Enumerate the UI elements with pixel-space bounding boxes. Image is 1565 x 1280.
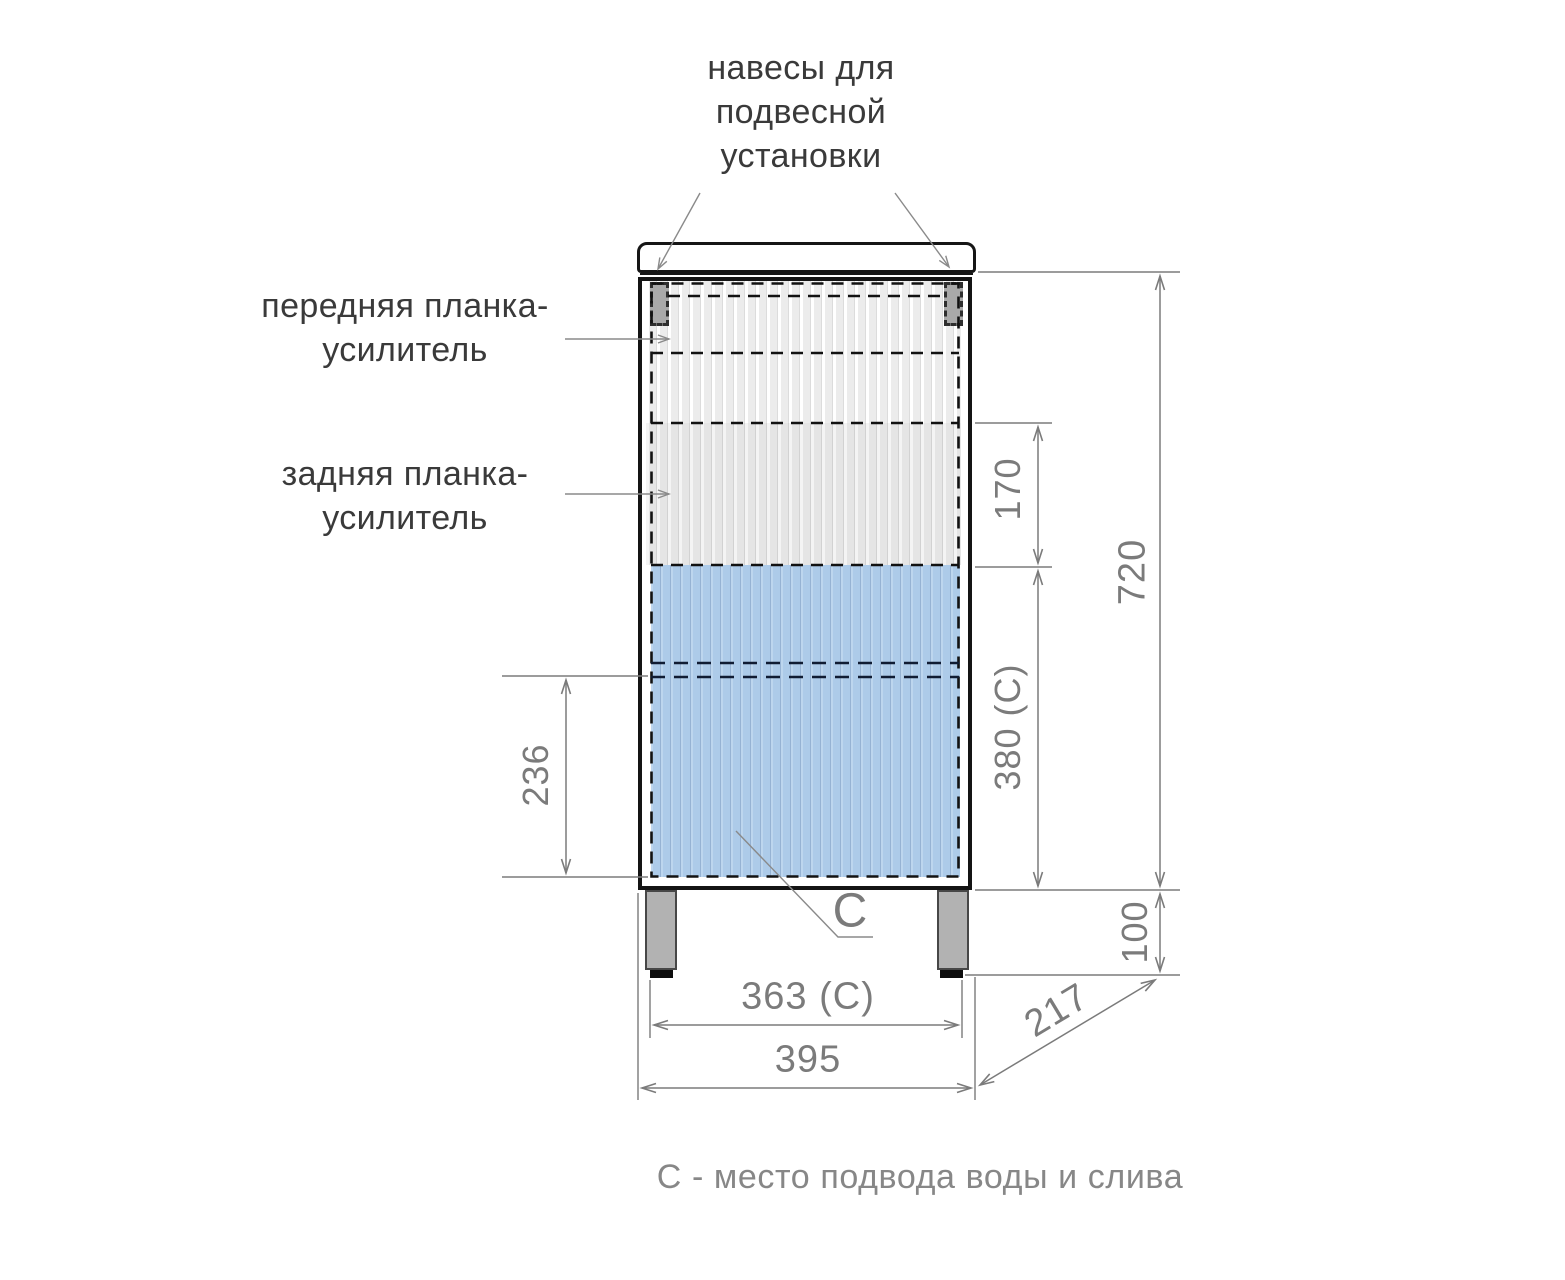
dimension-feet-span: 363 (С) (741, 976, 875, 1019)
front-bar-annotation: передняя планка- усилитель (175, 284, 635, 372)
rear-bar-annotation: задняя планка- усилитель (175, 452, 635, 540)
technical-drawing-cabinet: навесы для подвесной установки передняя … (0, 0, 1565, 1280)
legend-caption: С - место подвода воды и слива (540, 1158, 1300, 1197)
dimension-shelf-to-bottom: 236 (515, 743, 557, 806)
shelf-dashed-lines (651, 663, 959, 677)
dimension-body-height: 720 (1112, 539, 1155, 605)
dimension-overall-width: 395 (775, 1039, 841, 1082)
dimension-rear-bar-offset: 170 (987, 457, 1029, 520)
dimension-lines (566, 276, 1160, 1088)
dimension-leg-height: 100 (1114, 900, 1156, 963)
hangers-annotation: навесы для подвесной установки (600, 46, 1002, 178)
interior-dashed-lines (651, 284, 959, 877)
dimension-linework (0, 0, 1565, 1280)
dimension-c-zone-height: 380 (С) (987, 663, 1029, 790)
c-point-marker: С (833, 884, 868, 939)
